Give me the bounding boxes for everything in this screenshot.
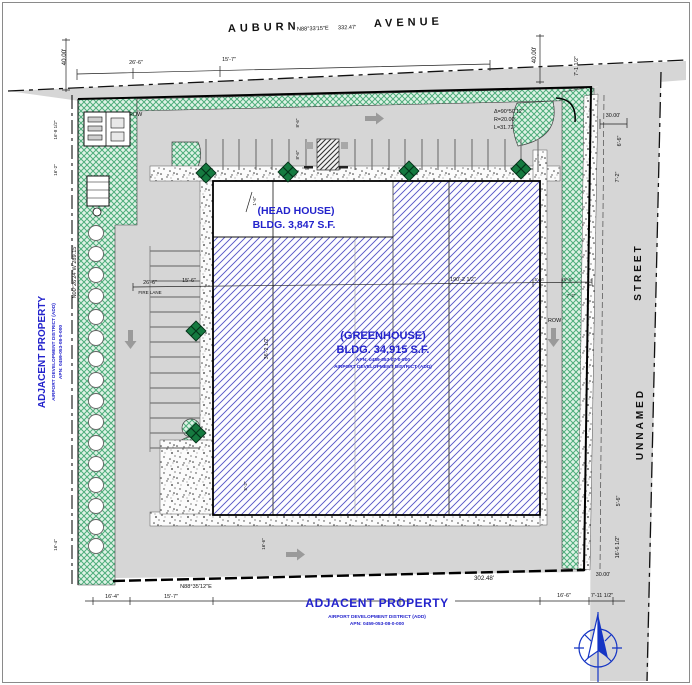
dim-36-2half: 36'-2 1/2": [264, 337, 270, 360]
dim-26-6-n: 26'-6": [129, 60, 143, 66]
south-distance: 302.48': [474, 575, 494, 582]
head-house-name: (HEAD HOUSE): [257, 205, 334, 217]
dim-5-2-b: 5'-2": [243, 481, 248, 490]
dim-7-11half-s: 7'-11 1/2": [591, 593, 613, 599]
site-plan-page: (HEAD HOUSE) BLDG. 3,847 S.F. (GREENHOUS…: [0, 0, 692, 685]
dim-8-6-a: 8'-6": [295, 118, 300, 127]
greenhouse-district: AIRPORT DEVELOPMENT DISTRICT (ADD): [334, 364, 432, 370]
dim-5-6-r: 5'-6": [535, 277, 544, 282]
west-bearing: N00°26'24"W 289.15': [72, 245, 78, 298]
dim-16-4-w: 16'-4": [53, 539, 58, 551]
dim-16-4-sw: 16'-4": [105, 594, 119, 600]
dim-15-6-mid: 15'-6": [182, 278, 196, 284]
adjacent-west-district: AIRPORT DEVELOPMENT DISTRICT (ADD): [51, 303, 57, 401]
southwest-walk-area: [160, 440, 213, 514]
curb-mark: [304, 166, 313, 169]
wheel-stop: [341, 142, 348, 149]
curve-length: L=31.72': [494, 125, 515, 131]
curve-delta: Δ=90°50'12": [494, 109, 524, 115]
greenhouse-area: BLDG. 34,915 S.F.: [337, 344, 430, 356]
curb-mark: [339, 166, 348, 169]
dim-7-1half-ne: 7'-1 1/2": [574, 56, 580, 76]
dim-26-6-r: 26'-6": [561, 277, 573, 282]
utility-vault: [93, 208, 101, 216]
auburn-bearing: N88°33'15"E: [297, 26, 329, 33]
greenhouse-apn: APN: 0459-053-07-0-000: [356, 357, 410, 363]
building: (HEAD HOUSE) BLDG. 3,847 S.F. (GREENHOUS…: [213, 181, 540, 515]
dim-26-6-mid: 26'-6": [143, 280, 157, 286]
adjacent-west-title: ADJACENT PROPERTY: [37, 296, 48, 409]
dim-40-ne: 40.00': [531, 47, 538, 64]
dim-15-7-sw: 15'-7": [164, 594, 178, 600]
dim-30-ne: 30.00': [606, 113, 621, 119]
dim-16-2-nw: 16'-2": [53, 164, 58, 176]
wheel-stop: [306, 142, 313, 149]
crosswalk: [317, 139, 339, 170]
row-label-east: ROW: [548, 318, 562, 324]
dim-190-2half: 190'-2 1/2": [450, 277, 476, 283]
dim-7-2-e: 7'-2": [615, 172, 621, 183]
adjacent-south-district: AIRPORT DEVELOPMENT DISTRICT (ADD): [328, 614, 426, 620]
dim-16-6-s: 16'-6": [557, 593, 571, 599]
dim-6-6-e: 6'-6": [617, 136, 623, 147]
south-bearing: N88°35'12"E: [180, 584, 212, 590]
dim-1-6-hh: 1'-6": [252, 196, 257, 205]
dim-16-8half-nw: 16'-8 1/2": [53, 120, 58, 139]
north-parking-stall-lines: [206, 139, 538, 170]
adjacent-south-title: ADJACENT PROPERTY: [305, 596, 448, 610]
dim-16-6-b: 16'-6": [261, 538, 266, 550]
dim-5-6-e: 5'-6": [616, 496, 622, 507]
dim-30-se: 30.00': [596, 572, 611, 578]
site-plan-drawing: (HEAD HOUSE) BLDG. 3,847 S.F. (GREENHOUS…: [0, 0, 692, 685]
unnamed-street-word-unnamed: UNNAMED: [635, 388, 646, 460]
auburn-name-left: AUBURN: [228, 21, 300, 35]
head-house-area: BLDG. 3,847 S.F.: [253, 219, 336, 231]
greenhouse-name: (GREENHOUSE): [340, 330, 426, 342]
dim-15-7-n: 15'-7": [222, 57, 236, 63]
utility-pad: [87, 176, 109, 206]
curve-radius: R=20.00': [494, 117, 516, 123]
adjacent-south-apn: APN: 0459-053-08-0-000: [350, 621, 404, 627]
auburn-distance: 332.47': [338, 25, 356, 32]
unnamed-street-word-street: STREET: [633, 243, 644, 300]
row-label-west: ROW: [129, 112, 143, 118]
dim-7-2-r: 7'-2": [567, 293, 576, 298]
dim-16-6half-e: 16'-6 1/2": [615, 536, 621, 559]
fire-lane-label: FIRE LANE: [138, 290, 161, 295]
dim-40-nw: 40.00': [61, 49, 68, 66]
dim-8-6-b: 8'-6": [295, 150, 300, 159]
adjacent-west-apn: APN: 0459-053-08-0-000: [58, 325, 64, 379]
auburn-name-right: AVENUE: [374, 16, 443, 30]
